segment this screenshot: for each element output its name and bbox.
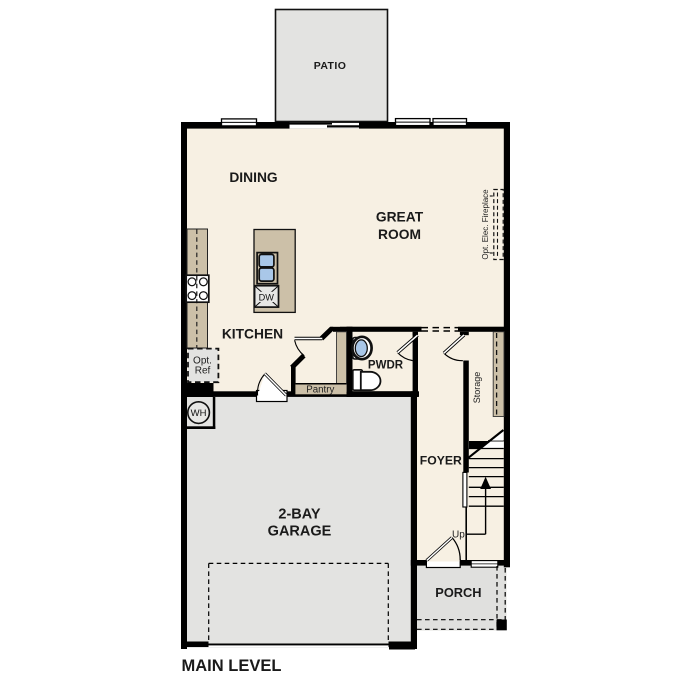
svg-text:GARAGE: GARAGE bbox=[268, 524, 332, 540]
svg-text:2-BAY: 2-BAY bbox=[278, 507, 321, 523]
svg-text:DINING: DINING bbox=[229, 170, 277, 185]
svg-text:Ref: Ref bbox=[195, 366, 211, 377]
svg-text:WH: WH bbox=[191, 408, 207, 419]
svg-text:Storage: Storage bbox=[472, 372, 482, 404]
svg-text:PATIO: PATIO bbox=[314, 60, 347, 72]
svg-text:ROOM: ROOM bbox=[378, 227, 421, 242]
svg-text:Opt. Elec. Fireplace: Opt. Elec. Fireplace bbox=[481, 189, 490, 260]
svg-text:MAIN LEVEL: MAIN LEVEL bbox=[182, 657, 282, 675]
svg-text:FOYER: FOYER bbox=[420, 453, 462, 467]
svg-text:GREAT: GREAT bbox=[376, 209, 424, 224]
svg-text:KITCHEN: KITCHEN bbox=[222, 327, 283, 342]
svg-text:PWDR: PWDR bbox=[368, 360, 404, 372]
svg-text:Pantry: Pantry bbox=[306, 384, 334, 395]
svg-text:PORCH: PORCH bbox=[435, 585, 481, 600]
svg-text:Up: Up bbox=[452, 529, 465, 540]
svg-text:DW: DW bbox=[259, 293, 275, 303]
